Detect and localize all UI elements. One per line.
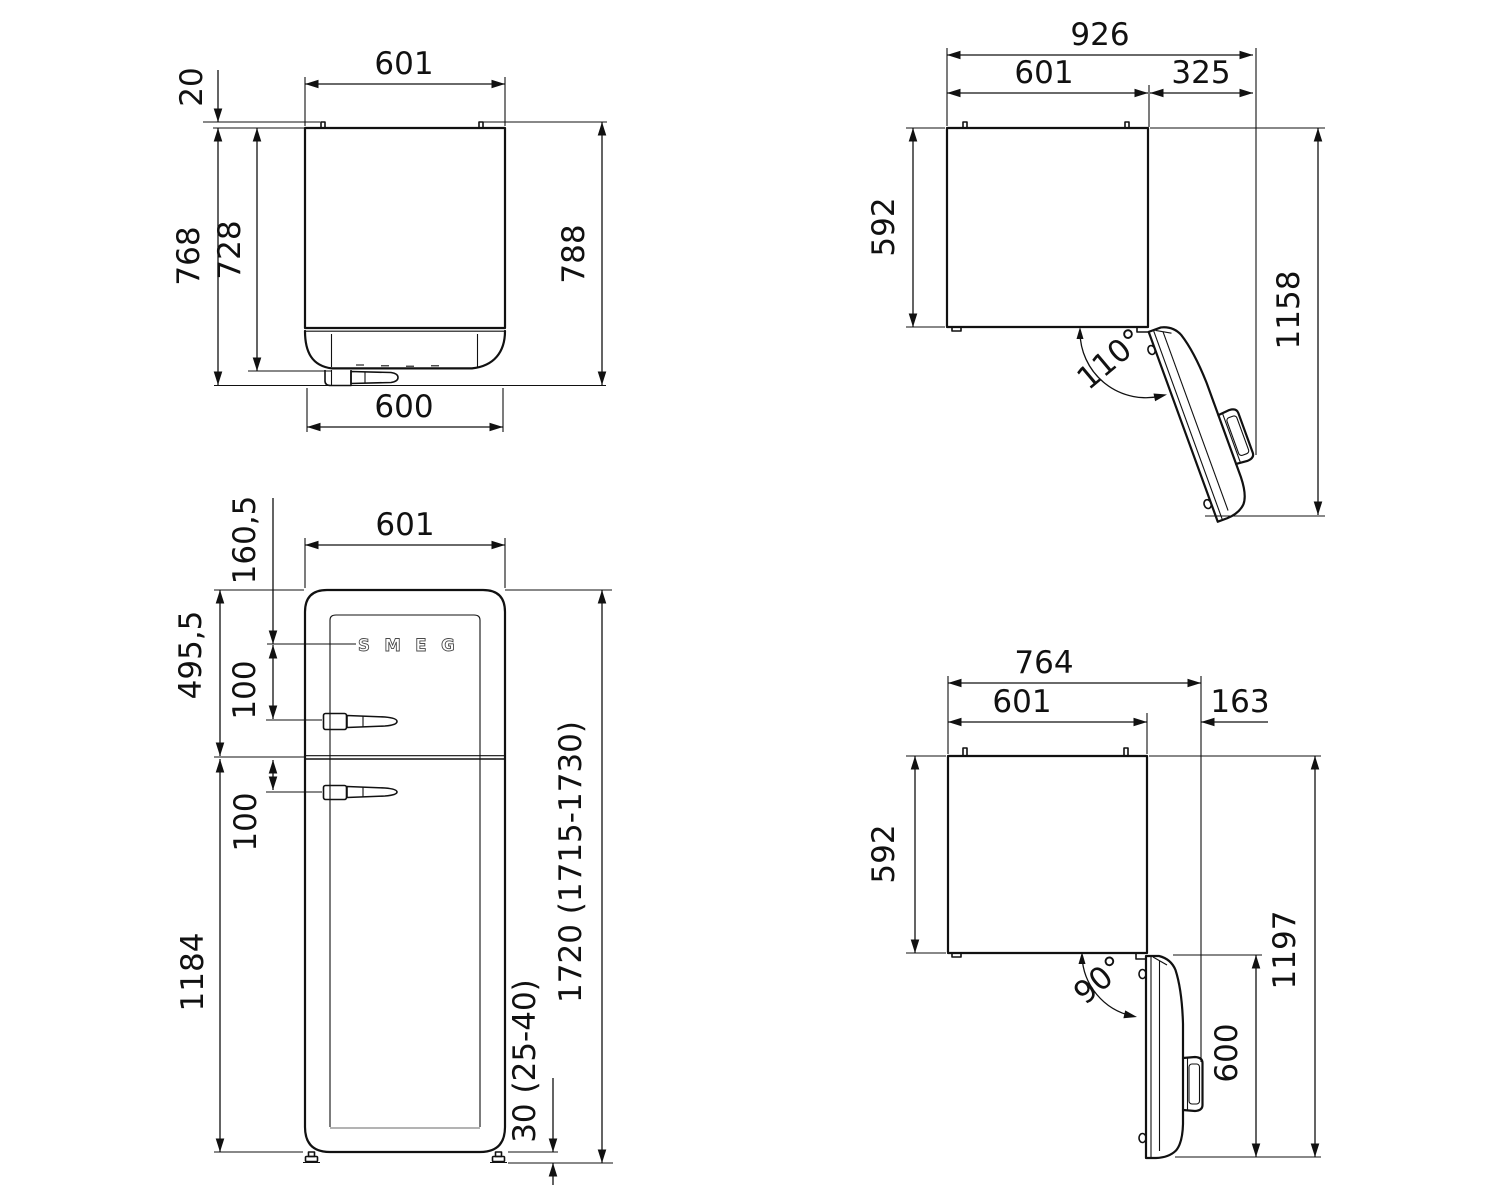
dim-label-cabinet-width: 601	[992, 684, 1051, 720]
arc-arrow	[1123, 1010, 1137, 1018]
dim-label-depth-with-door: 768	[171, 226, 207, 285]
left-foot	[303, 1152, 320, 1163]
upper-door-handle	[324, 714, 398, 730]
dim-label-total-width: 926	[1070, 17, 1129, 53]
dim-label-cabinet-depth: 728	[212, 220, 248, 279]
dim-label-cabinet-depth: 592	[866, 824, 902, 883]
door-handle-top-view	[325, 370, 398, 386]
cabinet-top-outline	[305, 128, 505, 328]
dim-label-split-to-handle: 100	[228, 792, 264, 851]
cabinet-top-outline	[947, 128, 1148, 327]
arc-arrow	[1077, 327, 1084, 339]
open-door-90	[1139, 956, 1203, 1158]
fridge-front-outline	[305, 590, 505, 1152]
dim-label-door-swing-extra: 163	[1210, 684, 1269, 720]
dimension-drawing-canvas: 601 20 768 728 788 600 110° 92	[0, 0, 1500, 1200]
door-front-bulge	[305, 331, 505, 368]
dim-label-door-angle: 110°	[1070, 322, 1150, 398]
dim-label-total-width: 764	[1014, 645, 1073, 681]
smeg-dimension-diagram: 601 20 768 728 788 600 110° 92	[0, 0, 1500, 1200]
front-foot-bump	[952, 327, 961, 331]
dim-label-rear-spacer: 20	[174, 67, 210, 106]
front-foot-bump	[952, 953, 961, 957]
dim-label-cabinet-depth: 592	[866, 197, 902, 256]
arc-arrow	[1154, 394, 1168, 402]
view-top-open-90: 90° 764 601 163 592 600 1197	[866, 645, 1321, 1158]
dim-label-cabinet-width: 601	[1014, 55, 1073, 91]
dim-label-width: 601	[375, 507, 434, 543]
dim-label-door-width: 600	[1209, 1023, 1245, 1082]
dim-label-logo-to-handle: 100	[227, 660, 263, 719]
rear-spacer-pin-left	[963, 748, 967, 756]
open-door-110	[1142, 313, 1271, 525]
smeg-logo: SMEG	[358, 636, 469, 655]
dim-label-top-to-logo: 160,5	[227, 496, 263, 585]
cabinet-top-outline	[948, 756, 1147, 953]
dim-label-door-width: 600	[374, 389, 433, 425]
door-edge-inner-lines	[330, 615, 480, 1127]
dim-label-total-height: 1720 (1715-1730)	[553, 721, 589, 1003]
dim-label-total-depth-open: 1158	[1271, 271, 1307, 350]
dim-label-door-angle: 90°	[1067, 949, 1132, 1012]
dim-label-width-top: 601	[374, 46, 433, 82]
dim-label-upper-section: 495,5	[173, 611, 209, 700]
dim-label-total-depth: 788	[556, 224, 592, 283]
view-top-closed: 601 20 768 728 788 600	[171, 46, 607, 432]
lower-door-handle	[324, 786, 398, 800]
dim-label-total-depth-open: 1197	[1267, 911, 1303, 990]
view-top-open-110: 110° 926 601 325 592 1158	[866, 17, 1325, 524]
right-foot	[490, 1152, 507, 1163]
dim-label-door-swing-extra: 325	[1171, 55, 1230, 91]
dim-label-lower-section: 1184	[175, 933, 211, 1012]
rear-spacer-pin-right	[1124, 748, 1128, 756]
dim-label-feet-height: 30 (25-40)	[507, 979, 543, 1143]
view-front: SMEG 601 160,5	[173, 496, 613, 1185]
